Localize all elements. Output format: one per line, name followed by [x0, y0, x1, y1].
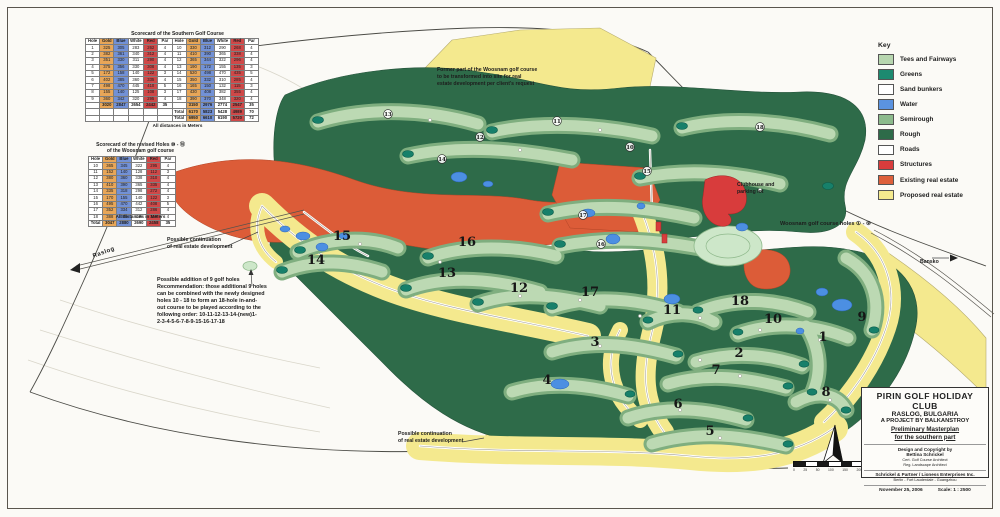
scorecard-cell — [114, 115, 128, 121]
scale-bar-segments — [793, 461, 865, 467]
scorecard-cell — [100, 115, 114, 121]
plan-type-2: for the southern part — [864, 434, 986, 442]
legend-item: Structures — [878, 160, 993, 171]
circled-hole-number: 11 — [553, 119, 561, 125]
proposed-green — [243, 262, 257, 271]
scale-label: 100 — [828, 468, 834, 472]
annotation-bansko: Bansko — [920, 252, 939, 266]
scorecard-cell — [158, 115, 172, 121]
plan-type-1: Preliminary Masterplan — [864, 426, 986, 434]
scorecard-cell: 6190 — [215, 115, 231, 121]
hole-number-6: 6 — [673, 397, 682, 412]
scorecard-south-footnote: All distances in Meters — [85, 123, 270, 128]
scorecard-south-table: HoleGoldBlueWhiteRedParHoleGoldBlueWhite… — [85, 38, 259, 122]
practice-green — [694, 226, 762, 266]
legend-item: Roads — [878, 145, 993, 156]
project-location: RASLOG, BULGARIA — [864, 411, 986, 418]
annotation-woosnam-holes: Woosnam golf course holes ① - ⑨ — [780, 221, 960, 228]
legend-item: Water — [878, 99, 993, 110]
plan-date: November 25, 2006 — [879, 488, 922, 493]
circled-hole-number: 13 — [384, 112, 392, 118]
project-title: PIRIN GOLF HOLIDAY CLUB — [864, 391, 986, 411]
circled-hole-number: 10 — [626, 145, 634, 151]
scorecard-woosnam-caption2: of the Woosnam golf course — [68, 148, 213, 154]
hole-number-4: 4 — [542, 373, 551, 388]
hole-number-14: 14 — [307, 253, 325, 268]
circled-hole-number: 12 — [476, 135, 484, 141]
legend-item: Existing real estate — [878, 175, 993, 186]
masterplan-sheet: 1514161312171118109127348651312111410151… — [0, 0, 1000, 517]
legend-label: Proposed real estate — [900, 192, 963, 199]
legend-swatch — [878, 145, 894, 156]
scale-label: 25 — [803, 468, 807, 472]
hole-number-7: 7 — [711, 363, 720, 378]
circled-hole-number: 16 — [597, 242, 605, 248]
scorecard-south-caption: Scorecard of the Southern Golf Course — [85, 31, 270, 37]
legend-label: Tees and Fairways — [900, 56, 956, 63]
hole-number-16: 16 — [458, 235, 476, 250]
plan-scale: Scale: 1 : 2500 — [938, 488, 971, 493]
hole-number-5: 5 — [705, 424, 714, 439]
legend-item: Semirough — [878, 114, 993, 125]
scorecard-header: White — [128, 39, 144, 45]
hole-number-17: 17 — [581, 285, 599, 300]
scorecard-cell — [144, 115, 158, 121]
scorecard-cell: 2458 — [147, 220, 161, 226]
legend-swatch — [878, 84, 894, 95]
raslog-arrow-icon — [70, 263, 80, 273]
scorecard-cell: 6610 — [200, 115, 214, 121]
legend-item: Sand bunkers — [878, 84, 993, 95]
legend-swatch — [878, 99, 894, 110]
hole-number-11: 11 — [663, 303, 681, 318]
project-client: A PROJECT BY BALKANSTROY — [864, 418, 986, 424]
legend-title: Key — [878, 42, 993, 49]
scale-bar-labels: 02550100150200m — [793, 468, 865, 472]
hole-number-12: 12 — [510, 281, 528, 296]
circled-hole-number: 15 — [643, 169, 651, 175]
firm-offices: Berlin - Fort Lauderdale - Guangzhou — [864, 478, 986, 482]
scorecard-cell: 6950 — [186, 115, 200, 121]
scorecard-woosnam-footnote: All distances in Meters — [68, 214, 213, 219]
hole-number-8: 8 — [821, 385, 830, 400]
scale-label: 150 — [842, 468, 848, 472]
legend-swatch — [878, 129, 894, 140]
legend-swatch — [878, 114, 894, 125]
legend-swatch — [878, 160, 894, 171]
hole-number-3: 3 — [590, 335, 599, 350]
hole-number-18: 18 — [731, 294, 749, 309]
scorecard-cell: 5720 — [230, 115, 244, 121]
annotation-continuation-s: Possible continuation of real estate dev… — [398, 431, 508, 445]
scorecard-woosnam-caption1: Scorecard of the revised Holes ⑩ - ⑱ — [68, 141, 213, 148]
legend-item: Greens — [878, 69, 993, 80]
bansko-label: Bansko — [920, 259, 939, 265]
legend-label: Semirough — [900, 116, 933, 123]
scorecard-row: Total695066106190572072 — [86, 115, 259, 121]
title-block: PIRIN GOLF HOLIDAY CLUB RASLOG, BULGARIA… — [861, 387, 989, 478]
hole-number-13: 13 — [438, 266, 456, 281]
legend-label: Rough — [900, 131, 920, 138]
legend-label: Sand bunkers — [900, 86, 942, 93]
architect-cert-2: Reg. Landscape Architect — [864, 463, 986, 468]
legend-swatch — [878, 54, 894, 65]
circled-hole-number: 18 — [756, 125, 764, 131]
scale-label: 50 — [816, 468, 820, 472]
scorecard-cell: 2690 — [131, 220, 147, 226]
legend-swatch — [878, 69, 894, 80]
scorecard-cell: Total — [89, 220, 103, 226]
legend-item: Proposed real estate — [878, 190, 993, 201]
legend-label: Structures — [900, 161, 932, 168]
legend-swatch — [878, 175, 894, 186]
annotation-continuation-nw: Possible continuation of real estate dev… — [167, 237, 277, 251]
scorecard-header: White — [131, 157, 147, 163]
scorecard-cell: 72 — [244, 115, 258, 121]
legend-item: Rough — [878, 129, 993, 140]
scorecard-cell — [128, 115, 144, 121]
scale-label: 0 — [793, 468, 795, 472]
annotation-former-woosnam: Former part of the Woosnam golf course t… — [437, 67, 597, 87]
legend-label: Existing real estate — [900, 177, 958, 184]
hole-number-1: 1 — [818, 330, 827, 345]
annotation-possible-addition: Possible addition of 9 golf holes Recomm… — [157, 277, 313, 326]
legend-label: Greens — [900, 71, 922, 78]
scorecard-cell: Total — [172, 115, 186, 121]
annotation-clubhouse: Clubhouse and parking lot — [737, 182, 807, 196]
scale-bar: 02550100150200m — [793, 461, 865, 472]
legend: Key Tees and FairwaysGreensSand bunkersW… — [878, 42, 993, 205]
scorecard-row: Total304728802690245835 — [89, 220, 176, 226]
scorecard-header: White — [215, 39, 231, 45]
scorecard-cell — [86, 115, 100, 121]
hole-number-9: 9 — [857, 310, 866, 325]
hole-number-2: 2 — [734, 346, 743, 361]
scorecard-cell: 2880 — [117, 220, 131, 226]
legend-item: Tees and Fairways — [878, 54, 993, 65]
legend-swatch — [878, 190, 894, 201]
hole-number-10: 10 — [764, 312, 782, 327]
scorecard-cell: 3047 — [103, 220, 117, 226]
legend-label: Water — [900, 101, 918, 108]
legend-label: Roads — [900, 146, 920, 153]
circled-hole-number: 14 — [438, 157, 446, 163]
legend-items: Tees and FairwaysGreensSand bunkersWater… — [878, 54, 993, 200]
hole-number-15: 15 — [333, 229, 351, 244]
circled-hole-number: 17 — [579, 213, 587, 219]
scorecard-cell: 35 — [161, 220, 175, 226]
